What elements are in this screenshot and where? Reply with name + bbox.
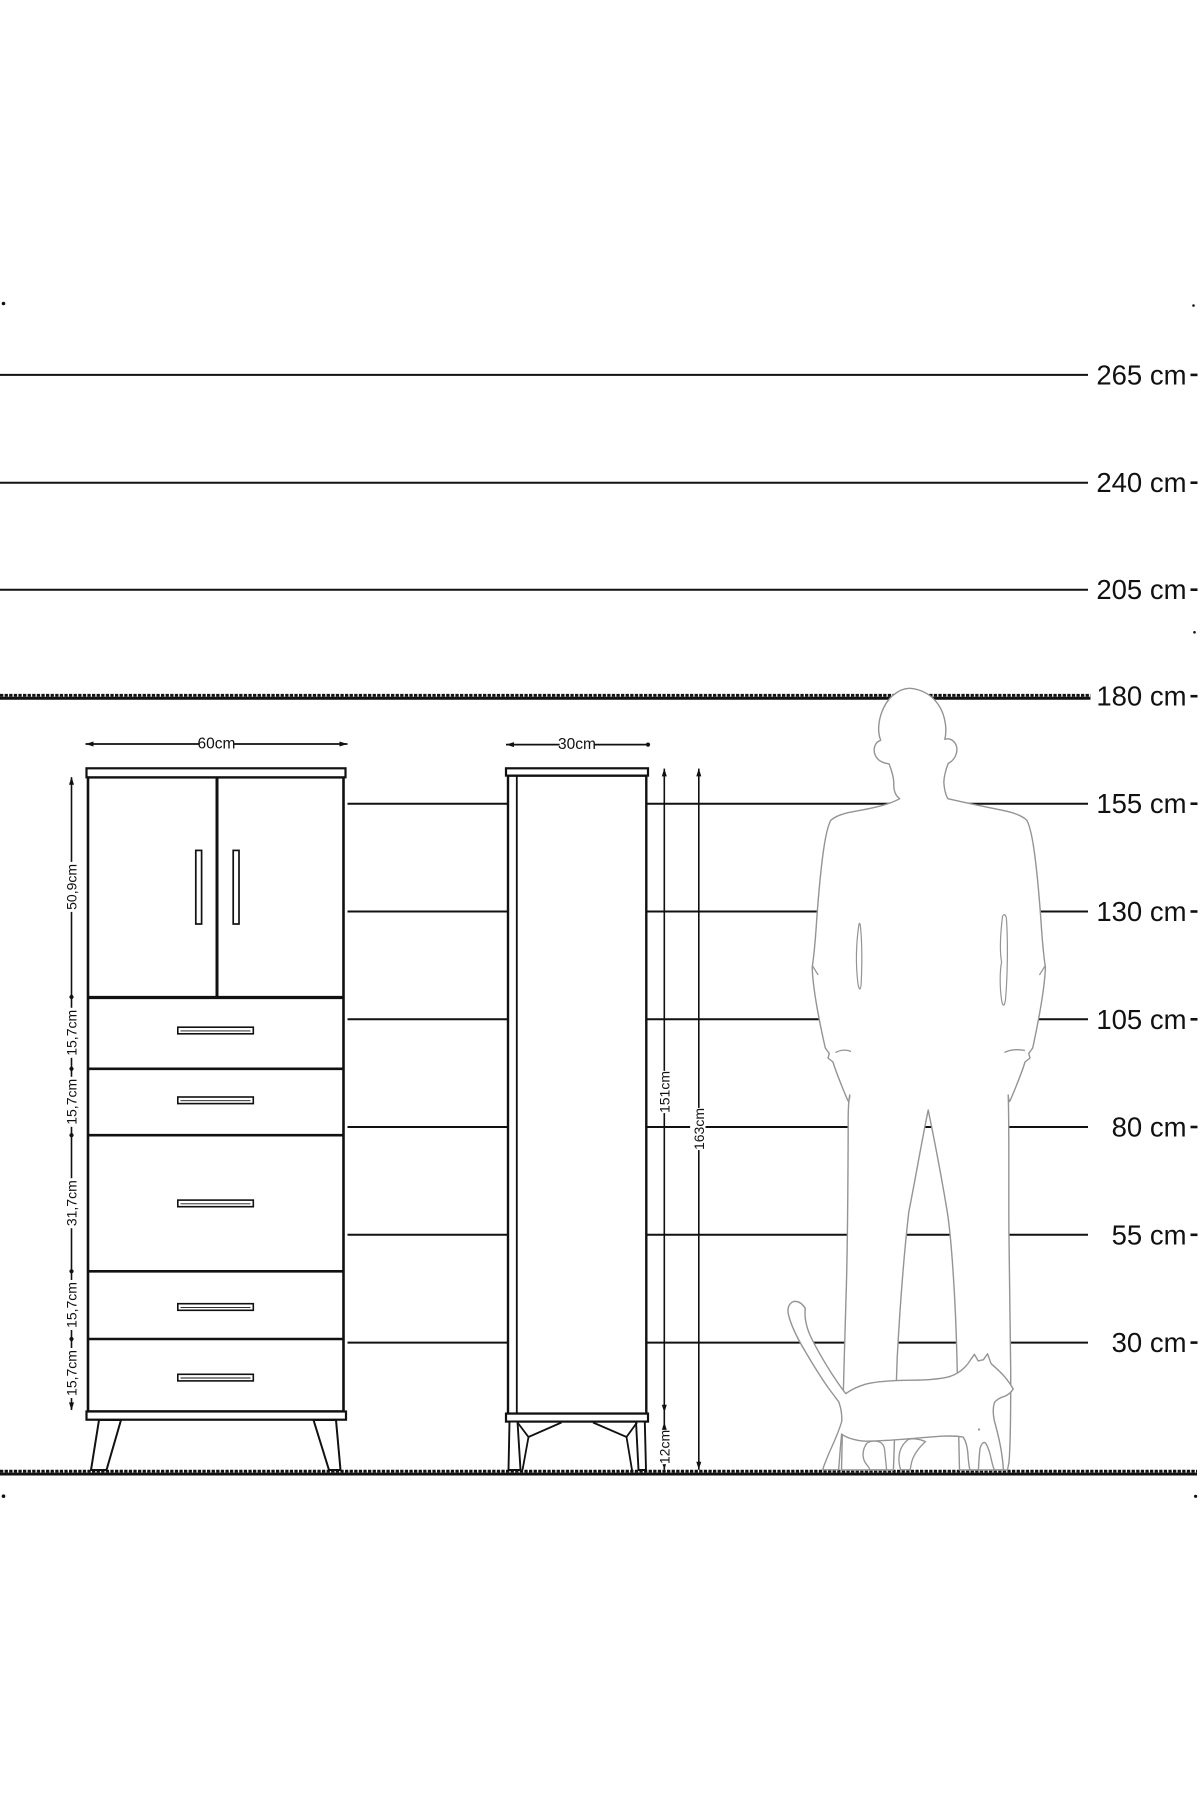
svg-text:12cm: 12cm <box>656 1430 672 1464</box>
svg-text:30 cm: 30 cm <box>1112 1327 1187 1358</box>
svg-text:105 cm: 105 cm <box>1096 1004 1186 1035</box>
svg-text:60cm: 60cm <box>198 736 236 753</box>
svg-text:31,7cm: 31,7cm <box>64 1180 80 1226</box>
svg-text:15,7cm: 15,7cm <box>64 1350 80 1396</box>
svg-text:15,7cm: 15,7cm <box>64 1010 80 1056</box>
svg-text:15,7cm: 15,7cm <box>64 1282 80 1328</box>
svg-text:50,9cm: 50,9cm <box>64 864 80 910</box>
svg-text:151cm: 151cm <box>656 1071 672 1113</box>
svg-text:130 cm: 130 cm <box>1096 896 1186 927</box>
svg-text:80 cm: 80 cm <box>1112 1112 1187 1143</box>
svg-text:205 cm: 205 cm <box>1096 574 1186 605</box>
svg-text:180 cm: 180 cm <box>1096 681 1186 712</box>
svg-text:265 cm: 265 cm <box>1096 359 1186 390</box>
svg-text:30cm: 30cm <box>558 736 596 753</box>
svg-text:55 cm: 55 cm <box>1112 1219 1187 1250</box>
svg-text:155 cm: 155 cm <box>1096 788 1186 819</box>
svg-text:163cm: 163cm <box>691 1108 707 1150</box>
svg-text:15,7cm: 15,7cm <box>64 1079 80 1125</box>
svg-text:240 cm: 240 cm <box>1096 467 1186 498</box>
